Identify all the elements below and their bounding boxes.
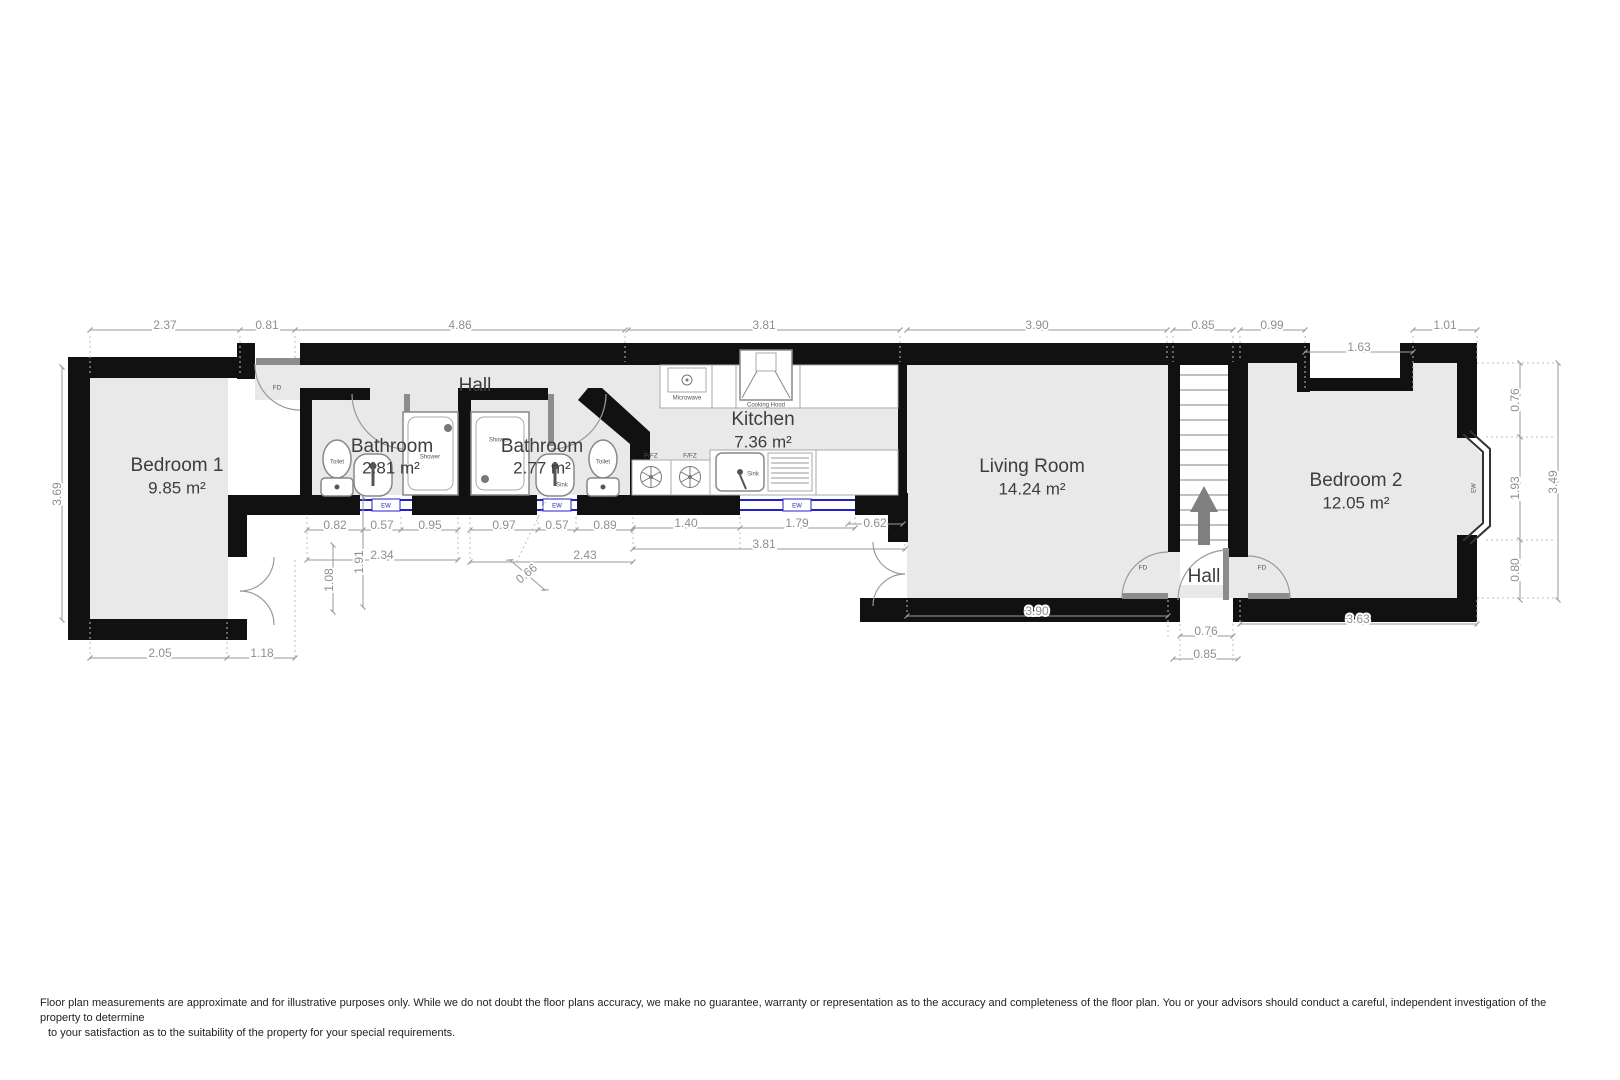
room-area-label: 2.77 m² — [513, 458, 571, 477]
dimension-label: 3.81 — [752, 537, 776, 551]
room-area-label: 2.81 m² — [362, 458, 420, 477]
room-name-label: Bathroom — [351, 436, 433, 457]
dimension-label: 3.69 — [50, 482, 64, 506]
dimension-label: 0.82 — [323, 518, 347, 532]
dimension-label: 0.81 — [255, 318, 279, 332]
room-name-label: Kitchen — [731, 409, 794, 430]
dimension-label: 3.90 — [1025, 604, 1049, 618]
dimension-label: 1.63 — [1347, 340, 1371, 354]
room-area-label: 9.85 m² — [148, 478, 206, 497]
dimension-label: 0.85 — [1193, 647, 1217, 661]
microwave-icon: Microwave — [668, 368, 706, 402]
fridge-freezer-label: F/FZ — [683, 453, 697, 460]
kitchen-sink-icon: Sink — [710, 450, 898, 495]
dimension-label: 1.40 — [674, 516, 698, 530]
dimension-label: 4.86 — [448, 318, 472, 332]
dimension-label: 2.43 — [573, 548, 597, 562]
toilet-label: Toilet — [596, 460, 610, 466]
dimension-label: 1.91 — [352, 550, 366, 574]
window-label: EW — [792, 504, 802, 510]
room-name-label: Bedroom 2 — [1310, 470, 1403, 491]
dimension-label: 1.01 — [1433, 318, 1457, 332]
dimension-label: 1.18 — [250, 646, 274, 660]
room-area-label: 12.05 m² — [1322, 493, 1389, 512]
room-area-label: 14.24 m² — [998, 479, 1065, 498]
window-icon: EW — [537, 499, 577, 511]
room-name-label: Hall — [1188, 566, 1221, 587]
toilet-label: Toilet — [330, 460, 344, 466]
dimension-label: 1.08 — [322, 568, 336, 592]
dimension-label: 3.63 — [1346, 612, 1370, 626]
fridge-freezer-label: F/FZ — [644, 453, 658, 460]
dimension-label: 0.76 — [1508, 388, 1522, 412]
room-name-label: Bathroom — [501, 436, 583, 457]
disclaimer-line: Floor plan measurements are approximate … — [40, 996, 1546, 1011]
void-area — [255, 400, 300, 495]
window-icon: EW — [360, 499, 412, 511]
disclaimer-line: to your satisfaction as to the suitabili… — [48, 1026, 1546, 1041]
toilet-icon: Toilet — [587, 440, 619, 496]
dimension-label: 3.90 — [1025, 318, 1049, 332]
window-label: EW — [381, 504, 391, 510]
dimension-label: 1.79 — [785, 516, 809, 530]
stair-well — [1180, 365, 1228, 585]
staircase — [1180, 365, 1228, 585]
bedroom1-floor — [90, 378, 228, 619]
room-area-label: 7.36 m² — [734, 432, 792, 451]
dimension-label: 3.49 — [1546, 470, 1560, 494]
dimension-label: 0.57 — [370, 518, 394, 532]
fire-door-label: FD — [1258, 565, 1267, 572]
cooking-hood-label: Cooking Hood — [747, 403, 785, 409]
dimension-label: 1.93 — [1508, 476, 1522, 500]
dimension-label: 0.99 — [1260, 318, 1284, 332]
dimension-label: 0.85 — [1191, 318, 1215, 332]
dimension-label: 0.62 — [863, 516, 887, 530]
dimension-label: 0.76 — [1194, 624, 1218, 638]
room-name-label: Living Room — [979, 456, 1085, 477]
toilet-icon: Toilet — [321, 440, 353, 496]
fire-door-label: FD — [273, 385, 282, 392]
disclaimer: Floor plan measurements are approximate … — [40, 996, 1546, 1041]
window-icon: EW — [740, 499, 855, 511]
dimension-label: 0.57 — [545, 518, 569, 532]
window-label: EW — [1472, 483, 1478, 493]
microwave-label: Microwave — [673, 396, 702, 402]
window-label: EW — [552, 504, 562, 510]
cooking-hood-icon: Cooking Hood — [740, 350, 792, 409]
dimension-label: 2.05 — [148, 646, 172, 660]
living-kitchen-double-door — [873, 542, 905, 606]
disclaimer-line: property to determine — [40, 1011, 1546, 1026]
dimension-label: 2.37 — [153, 318, 177, 332]
dimension-label: 0.80 — [1508, 558, 1522, 582]
dimension-label: 0.97 — [492, 518, 516, 532]
dimension-label: 2.34 — [370, 548, 394, 562]
room-name-label: Hall — [459, 375, 492, 396]
sink-label: Sink — [556, 483, 569, 489]
dimension-label: 0.95 — [418, 518, 442, 532]
dimension-label: 3.81 — [752, 318, 776, 332]
floor-plan: EW EW EW EW FD — [0, 0, 1620, 1080]
bedroom1-double-door — [240, 557, 274, 625]
sink-label: Sink — [747, 472, 760, 478]
dimension-label: 0.89 — [593, 518, 617, 532]
fire-door-label: FD — [1139, 565, 1148, 572]
room-name-label: Bedroom 1 — [131, 455, 224, 476]
